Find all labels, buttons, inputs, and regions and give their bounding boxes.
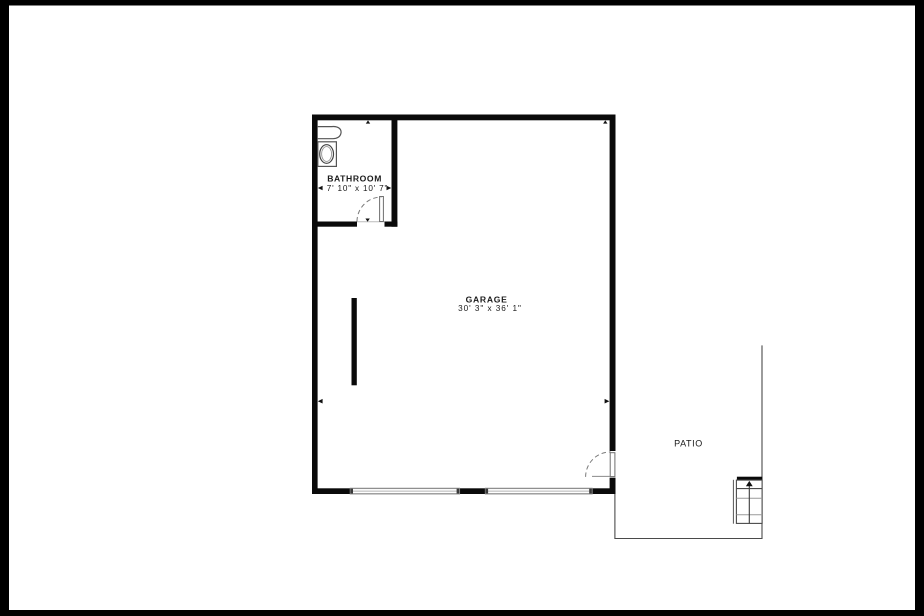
svg-text:GARAGE: GARAGE xyxy=(466,294,508,304)
svg-text:30' 3" x 36' 1": 30' 3" x 36' 1" xyxy=(458,304,522,313)
svg-text:PATIO: PATIO xyxy=(674,438,703,448)
svg-text:BATHROOM: BATHROOM xyxy=(327,174,382,184)
svg-text:7' 10" x 10' 7": 7' 10" x 10' 7" xyxy=(327,184,388,193)
